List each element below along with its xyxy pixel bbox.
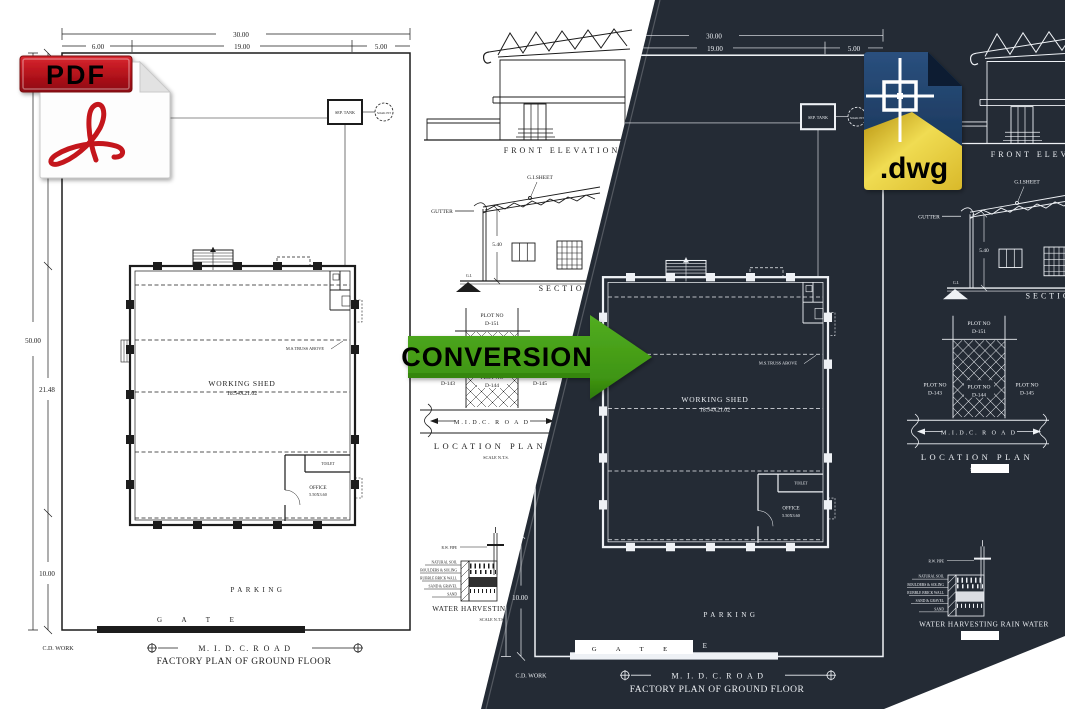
scene: 30.00 6.00 19.00 5.00 50.00 18.52 21.48 … bbox=[0, 0, 1065, 709]
conversion-label: CONVERSION bbox=[401, 342, 593, 372]
dwg-file-icon: .dwg bbox=[864, 52, 962, 190]
pdf-to-dwg-conversion-banner: 30.00 6.00 19.00 5.00 50.00 18.52 21.48 … bbox=[0, 0, 1065, 709]
dwg-label: .dwg bbox=[880, 152, 948, 185]
pdf-label: PDF bbox=[46, 60, 106, 90]
water-scale-highlight bbox=[961, 631, 999, 640]
location-scale-highlight bbox=[971, 464, 1009, 473]
pdf-file-icon: PDF bbox=[20, 56, 170, 178]
gate-label-dwg: G A T E bbox=[592, 646, 676, 653]
